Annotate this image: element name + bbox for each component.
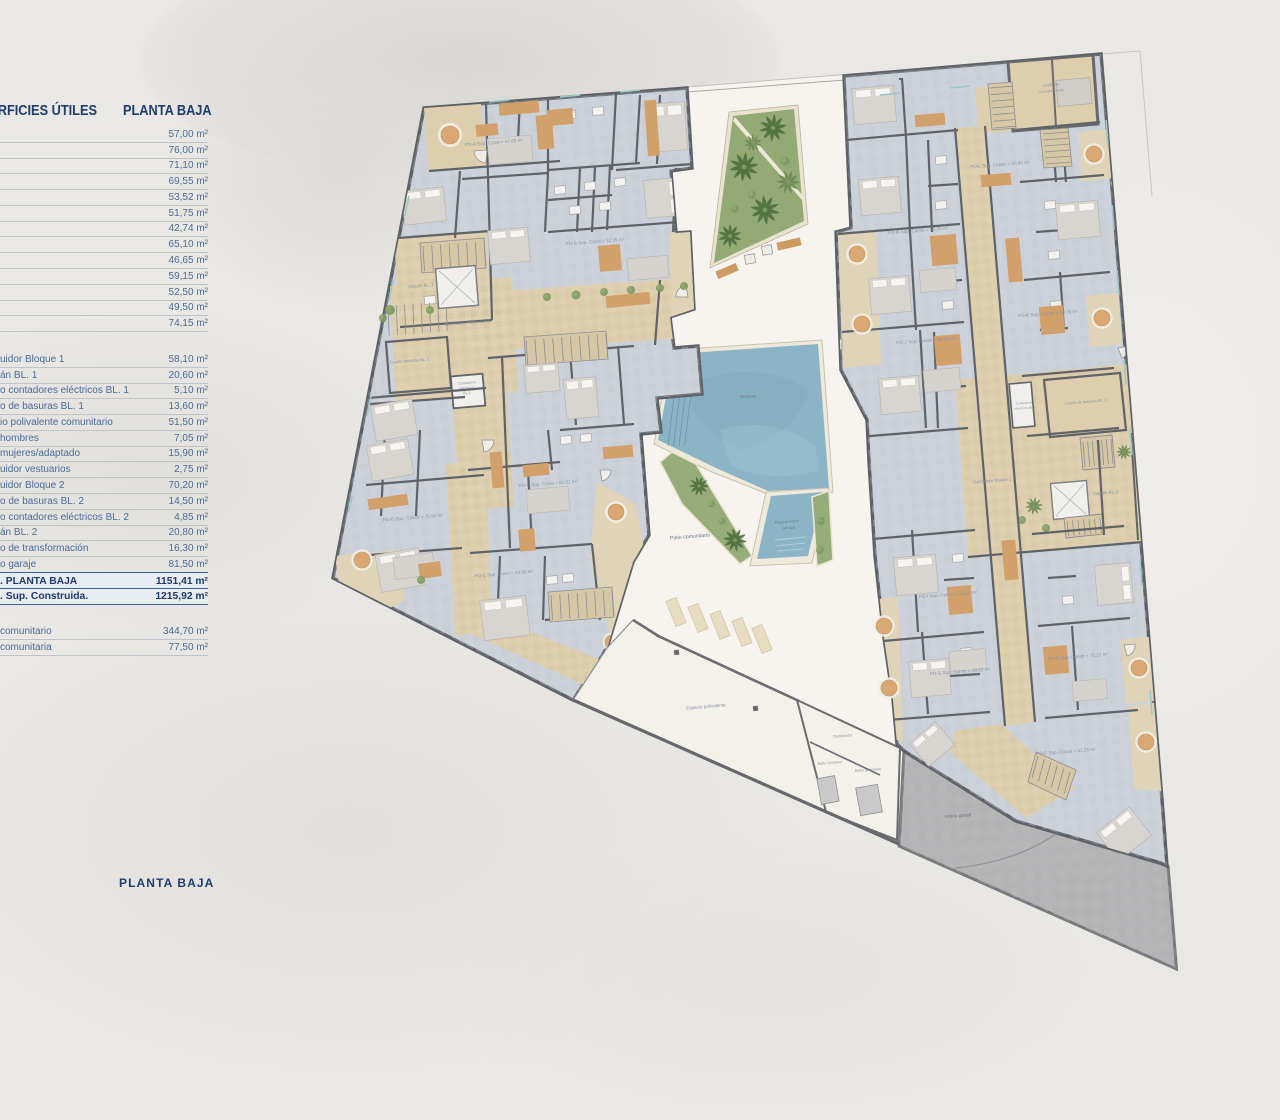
svg-text:terraza: terraza — [782, 524, 796, 530]
svg-text:BL.1: BL.1 — [463, 391, 471, 396]
